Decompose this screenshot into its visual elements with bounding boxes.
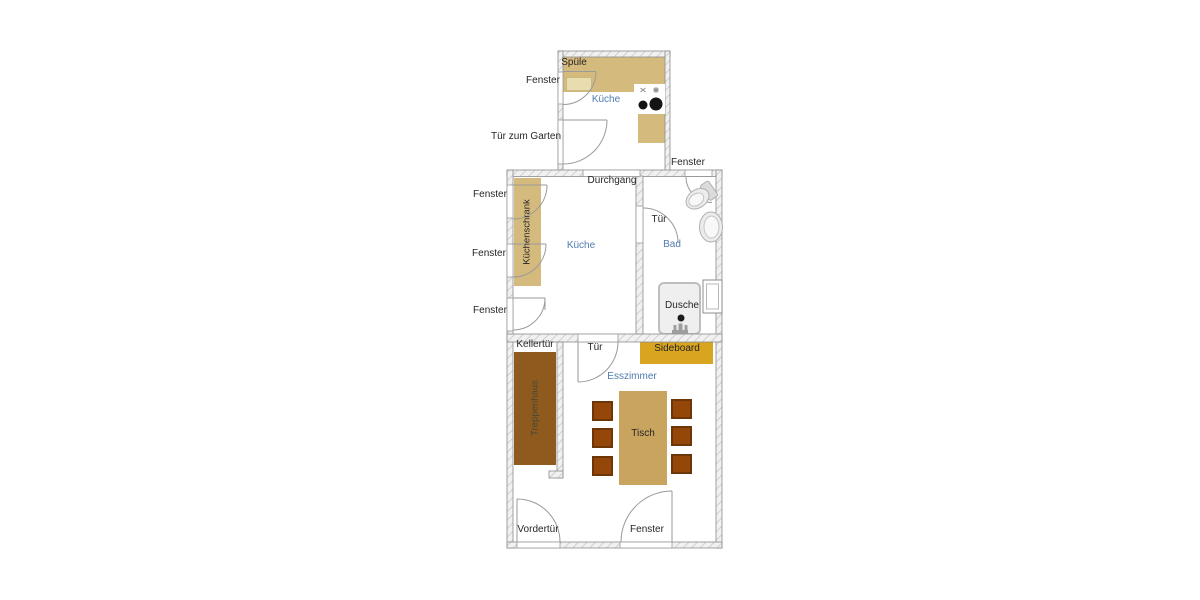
bathroom-window-opening[interactable] xyxy=(685,170,712,177)
wall-niche xyxy=(703,280,722,313)
window-label-bathroom: Fenster xyxy=(671,158,705,168)
shower-label: Dusche xyxy=(665,301,699,311)
shower-drain xyxy=(672,315,688,334)
passage-label: Durchgang xyxy=(588,176,637,186)
sideboard-label: Sideboard xyxy=(654,344,700,354)
window-label-dining: Fenster xyxy=(630,525,664,535)
bathroom-door-opening[interactable] xyxy=(636,206,643,243)
window-opening-1[interactable] xyxy=(507,185,513,218)
room-label-dining: Esszimmer xyxy=(607,372,656,382)
window-opening-3[interactable] xyxy=(507,298,513,331)
dining-door-label: Tür xyxy=(588,343,603,353)
burner-large xyxy=(650,98,663,111)
bathroom-sink[interactable] xyxy=(700,212,723,242)
cellar-door-label: Kellertür xyxy=(516,340,553,350)
floor-plan: Spüle Küche Fenster Tür zum Garten Durch… xyxy=(0,0,1200,600)
room-label-top-kitchen: Küche xyxy=(592,95,620,105)
window-opening-dining[interactable] xyxy=(620,542,672,548)
bathroom-door-label: Tür xyxy=(652,215,667,225)
wall xyxy=(636,176,643,334)
dining-door-opening[interactable] xyxy=(578,334,618,342)
wall xyxy=(557,342,563,478)
front-door-swing xyxy=(517,499,560,542)
wall xyxy=(665,51,670,176)
stove-top xyxy=(634,84,665,114)
room-label-main-kitchen: Küche xyxy=(567,241,595,251)
garden-door-opening[interactable] xyxy=(558,120,563,164)
wall-foot xyxy=(549,471,563,478)
burner-small xyxy=(639,101,648,110)
room-label-bathroom: Bad xyxy=(663,240,681,250)
window-label-1: Fenster xyxy=(473,190,507,200)
garden-door-swing xyxy=(563,120,607,164)
window-label-2: Fenster xyxy=(472,249,506,259)
window-swing-3 xyxy=(513,298,545,330)
garden-door-label: Tür zum Garten xyxy=(491,132,561,142)
wall xyxy=(507,170,513,548)
front-door-label: Vordertür xyxy=(517,525,558,535)
stairs-label: Treppenhaus xyxy=(530,380,540,436)
shower-faucet-icon xyxy=(672,324,688,334)
window-label-3: Fenster xyxy=(473,306,507,316)
stove[interactable] xyxy=(634,84,665,114)
window-label-top-kitchen: Fenster xyxy=(526,76,560,86)
sink-label: Spüle xyxy=(561,58,587,68)
shower-drain-dot xyxy=(678,315,685,322)
table-label: Tisch xyxy=(631,429,655,439)
window-opening-2[interactable] xyxy=(507,244,513,277)
front-door-opening[interactable] xyxy=(517,542,560,548)
cabinet-label: Küchenschrank xyxy=(522,199,532,264)
plan-drawing xyxy=(0,0,1200,600)
